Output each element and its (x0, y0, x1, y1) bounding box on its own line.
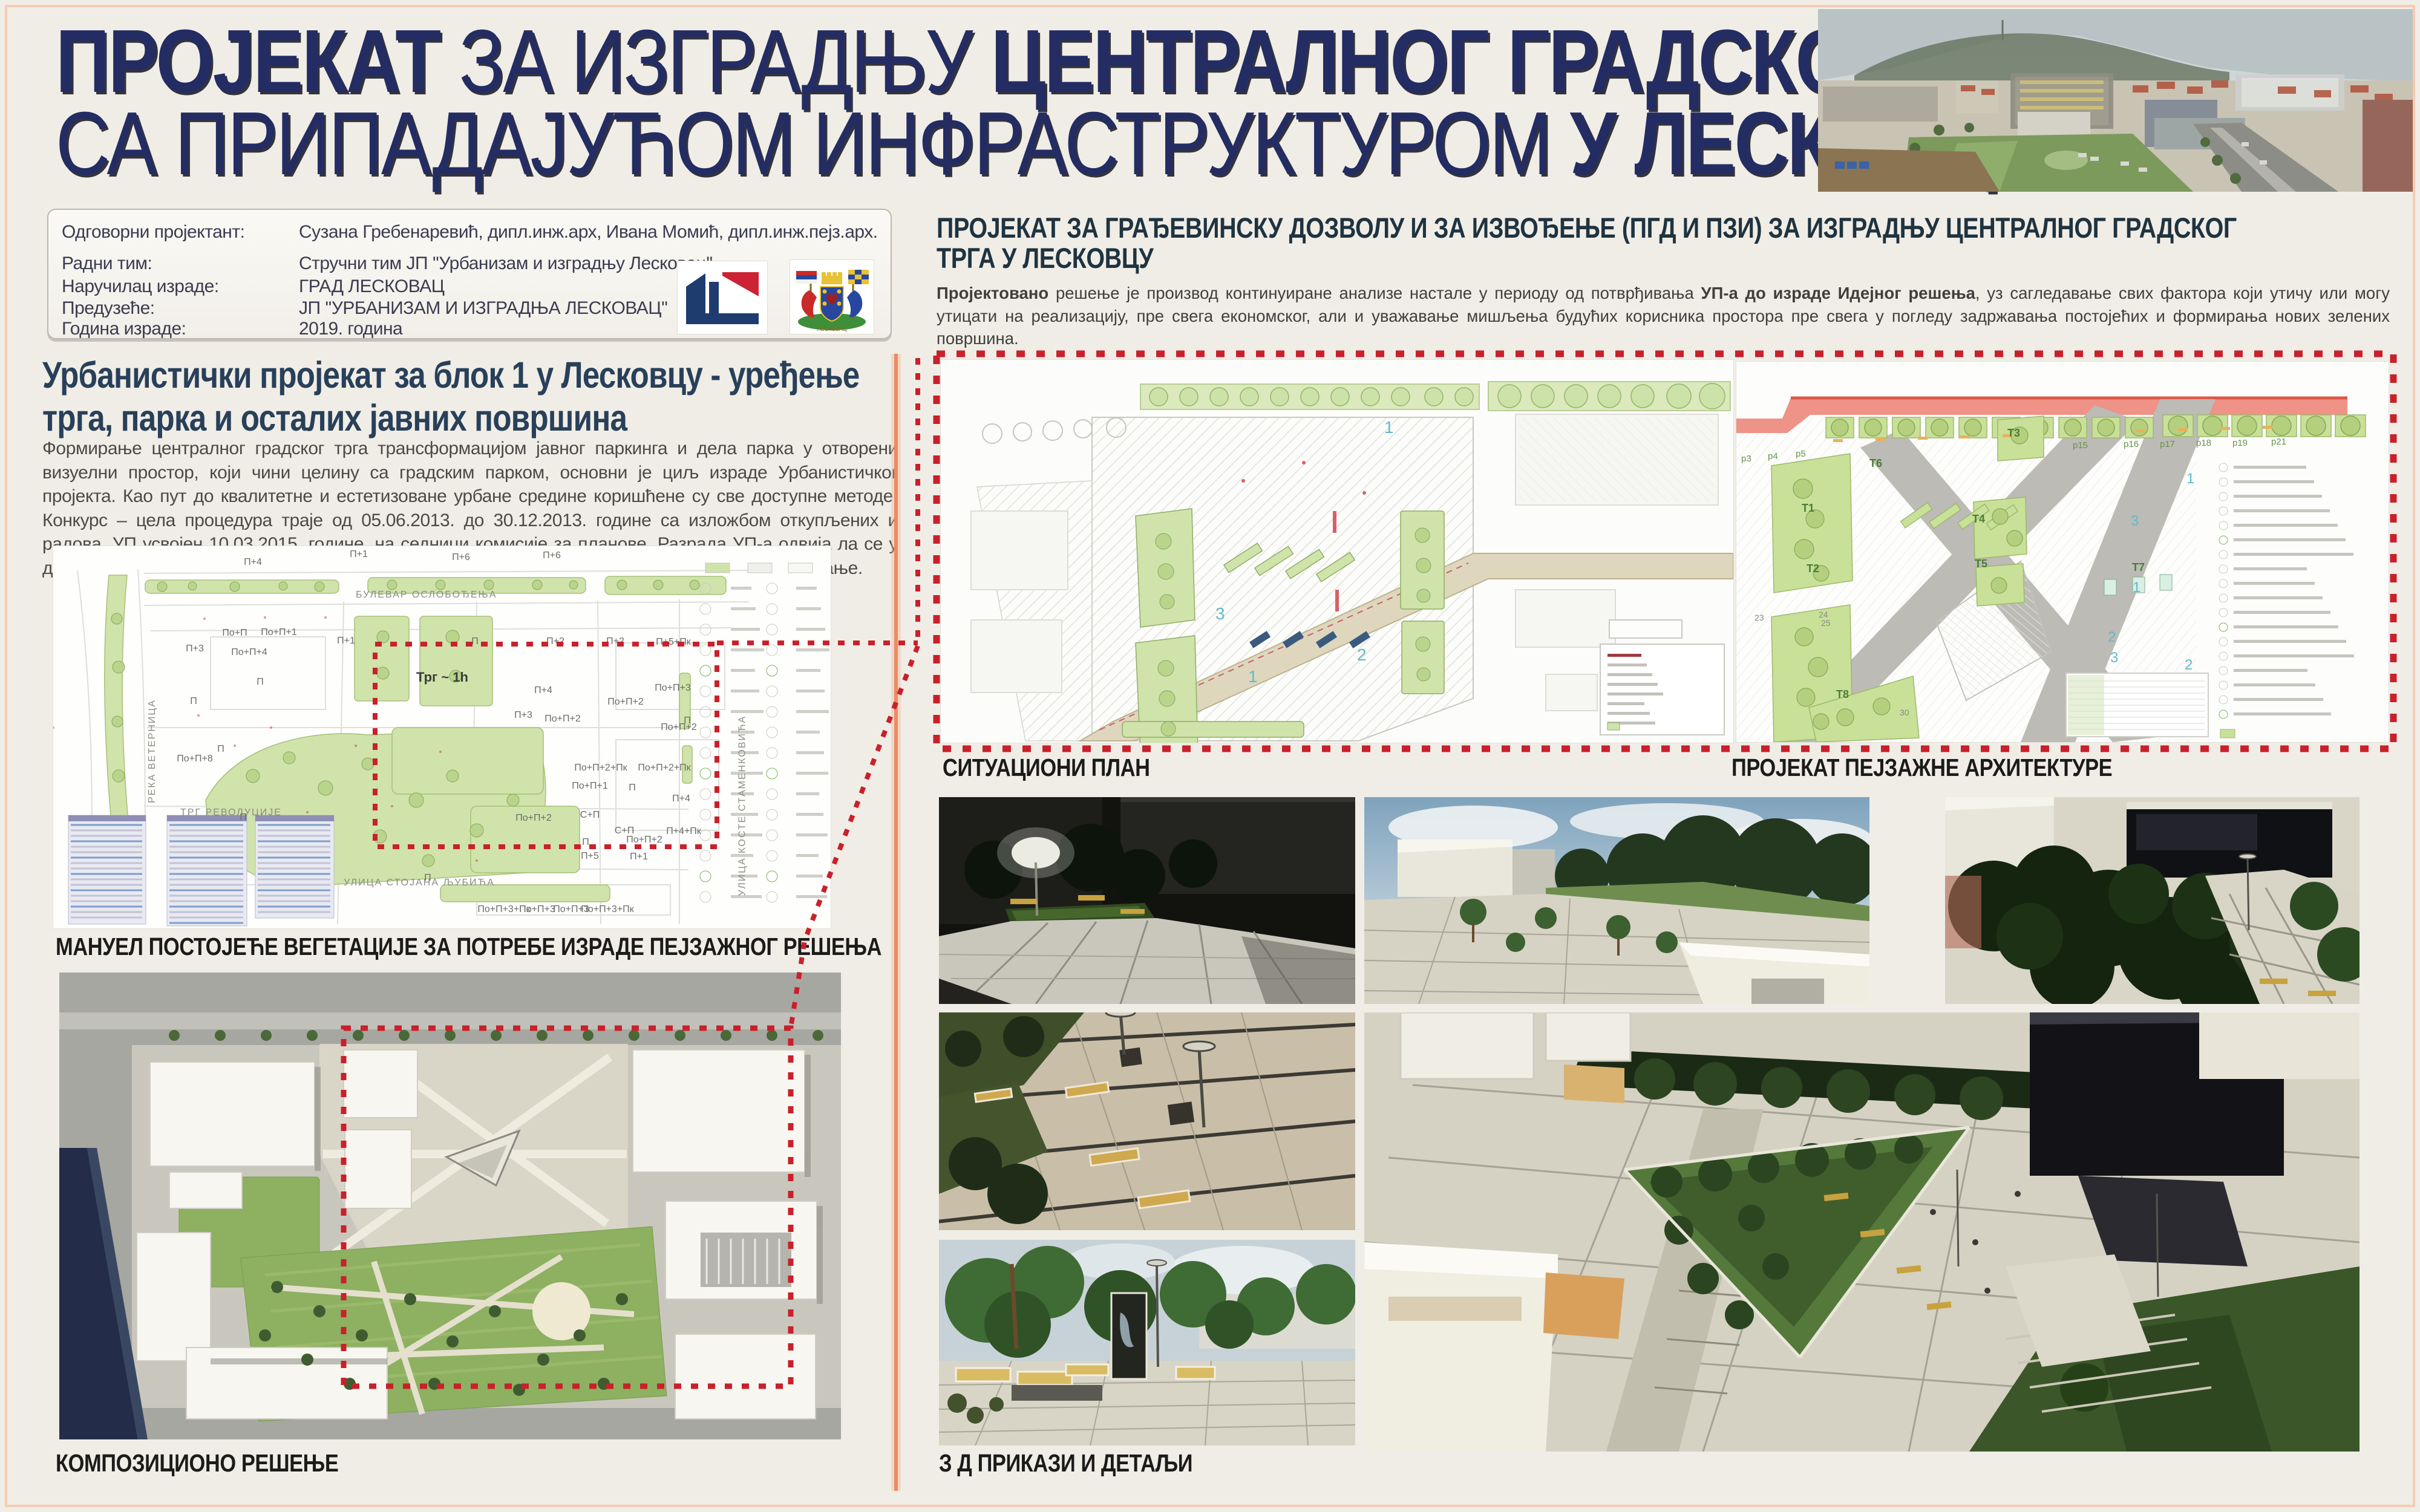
situational-plan-caption: СИТУАЦИОНИ ПЛАН (943, 754, 1150, 782)
render-park-benches (939, 1240, 1355, 1445)
building-storey-label: П (424, 873, 431, 884)
building-storey-label: П (629, 783, 636, 793)
text-run: СА ПРИПАДАЈУЋОМ ИНФРАСТРУКТУРОМ (56, 94, 1570, 194)
building-storey-label: П (582, 837, 589, 848)
text-run: УП-а до израде Идејног решења (1701, 284, 1975, 302)
parcel-label: p3 (1741, 454, 1751, 464)
render-tree-alley-view-graphic (1945, 797, 2359, 1004)
building-storey-label: П+3 (514, 710, 532, 721)
text-run: решење је производ континуиране анализе … (1048, 284, 1701, 302)
parcel-label: p4 (1768, 451, 1778, 461)
situational-plan: 1321 (941, 360, 1733, 743)
building-storey-label: По+П (222, 628, 247, 639)
street-label: ТРГ РЕВОЛУЦИЈЕ (180, 807, 282, 818)
city-aerial-photo-graphic (1818, 9, 2413, 192)
planting-area-label: T5 (1975, 558, 1987, 570)
right-section-heading: ПРОЈЕКАТ ЗА ГРАЂЕВИНСКУ ДОЗВОЛУ И ЗА ИЗВ… (937, 213, 2237, 273)
jp-urbanizam-logo (678, 261, 767, 334)
building-storey-label: П+1 (337, 636, 355, 647)
building-storey-label: По+П+1 (572, 781, 607, 792)
building-storey-label: П+2 (546, 636, 564, 647)
building-storey-label: П+4 (244, 557, 262, 568)
building-storey-label: П+6 (452, 552, 470, 563)
render-night-square-graphic (939, 797, 1355, 1004)
parcel-label: p5 (1796, 449, 1806, 459)
landscape-architecture-plan: T1T2T3T4T5T6T7T8p3p4p5p15p16p17p18p19p21… (1736, 362, 2389, 742)
parcel-label: p15 (2073, 440, 2088, 451)
building-storey-label: П+5 (581, 851, 599, 862)
parcel-label: p21 (2271, 437, 2286, 447)
composition-plan (59, 973, 841, 1439)
zone-number: 1 (2133, 579, 2140, 596)
building-storey-label: С+П (580, 810, 600, 821)
leskovac-coat-of-arms: ЛЕСКОВАЦ (790, 260, 874, 334)
text-run: Пројектовано (937, 284, 1048, 302)
parcel-label: p17 (2160, 439, 2175, 449)
left-section-heading: Урбанистички пројекат за блок 1 у Лесков… (42, 354, 859, 440)
city-aerial-photo (1818, 9, 2413, 192)
situational-plan-graphic (941, 360, 1733, 743)
building-storey-label: П (471, 636, 479, 647)
right-heading-line2: ТРГА У ЛЕСКОВЦУ (937, 243, 2237, 273)
tree-number-label: 23 (1754, 613, 1764, 622)
building-storey-label: П+6 (543, 550, 561, 561)
info-row-label: Одговорни пројектант: (62, 222, 286, 243)
render-night-square (939, 797, 1355, 1004)
planting-area-label: T6 (1869, 457, 1882, 470)
building-storey-label: П+3 (186, 644, 204, 654)
info-row-label: Година израде: (62, 319, 286, 339)
zone-number: 1 (1248, 667, 1258, 686)
building-storey-label: По+П+2 (626, 835, 662, 846)
right-heading-line1: ПРОЈЕКАТ ЗА ГРАЂЕВИНСКУ ДОЗВОЛУ И ЗА ИЗВ… (937, 213, 2237, 243)
leskovac-coat-of-arms-icon: ЛЕСКОВАЦ (790, 260, 874, 334)
zone-number: 3 (2110, 650, 2118, 666)
building-storey-label: П+1 (630, 852, 648, 862)
zone-number: 2 (1357, 645, 1367, 665)
vegetation-map-graphic (53, 546, 831, 928)
building-storey-label: П+4+Пк (666, 826, 701, 837)
render-paving-detail (939, 1012, 1355, 1230)
street-label: УЛИЦА СТОЈАНА ЉУБИЋА (344, 878, 495, 888)
render-tree-alley-view (1945, 797, 2359, 1004)
zone-number: 2 (2108, 629, 2116, 646)
page-title: ПРОЈЕКАТ ЗА ИЗГРАДЊУ ЦЕНТРАЛНОГ ГРАДСКОГ… (56, 21, 2095, 185)
building-storey-label: П (217, 744, 224, 755)
zone-number: 2 (2185, 657, 2193, 674)
building-storey-label: По+П+2+Пк (574, 763, 627, 774)
page-title-line2: СА ПРИПАДАЈУЋОМ ИНФРАСТРУКТУРОМ У ЛЕСКОВ… (56, 103, 2095, 185)
render-park-benches-graphic (939, 1240, 1355, 1445)
building-storey-label: П+4 (672, 793, 690, 804)
building-storey-label: По+П+3+Пк (581, 904, 633, 915)
info-row-value: Сузана Гребенаревић, дипл.инж.арх, Ивана… (299, 222, 880, 243)
zone-number: 3 (2131, 513, 2139, 530)
building-storey-label: По+П+2 (661, 722, 696, 733)
coat-of-arms-city-name: ЛЕСКОВАЦ (817, 326, 847, 332)
planting-area-label: T7 (2132, 561, 2145, 574)
left-heading-line1: Урбанистички пројекат за блок 1 у Лесков… (42, 354, 859, 397)
building-storey-label: По+П+2 (515, 813, 551, 824)
zone-number: 3 (1215, 604, 1225, 624)
square-area-label: Трг ~ 1h (416, 670, 468, 685)
page-title-line1: ПРОЈЕКАТ ЗА ИЗГРАДЊУ ЦЕНТРАЛНОГ ГРАДСКОГ… (56, 21, 2095, 103)
building-storey-label: По+П+2 (607, 697, 643, 708)
parcel-label: p16 (2124, 439, 2139, 449)
render-square-day-view-graphic (1364, 797, 1869, 1004)
building-storey-label: П+4 (534, 685, 552, 696)
info-row-label: Наручилац израде: (62, 276, 286, 297)
tree-number-label: 25 (1821, 618, 1831, 628)
planting-area-label: T2 (1807, 562, 1819, 575)
info-row-label: Предузеће: (62, 298, 286, 319)
building-storey-label: П+1 (350, 549, 368, 560)
vegetation-map-caption: МАНУЕЛ ПОСТОЈЕЋЕ ВЕГЕТАЦИЈЕ ЗА ПОТРЕБЕ И… (56, 933, 881, 961)
render-square-aerial-view (1364, 1012, 2359, 1452)
parcel-label: p19 (2232, 438, 2248, 448)
building-storey-label: По+П+3 (655, 683, 690, 694)
zone-number: 1 (2186, 471, 2194, 487)
landscape-plan-caption: ПРОЈЕКАТ ПЕЈЗАЖНЕ АРХИТЕКТУРЕ (1732, 754, 2112, 782)
street-label: БУЛЕВАР ОСЛОБОЂЕЊА (356, 590, 497, 601)
building-storey-label: По+П+2+Пк (638, 763, 690, 774)
building-storey-label: По+П+3 (519, 904, 555, 915)
composition-plan-caption: КОМПОЗИЦИОНО РЕШЕЊЕ (56, 1449, 338, 1478)
zone-number: 1 (1384, 418, 1394, 437)
building-storey-label: П (257, 677, 264, 688)
jp-urbanizam-logo-icon (678, 261, 767, 334)
composition-plan-graphic (59, 973, 841, 1439)
parcel-label: p18 (2196, 438, 2211, 448)
render-square-aerial-view-graphic (1364, 1012, 2359, 1452)
tree-number-label: 30 (1900, 708, 1909, 717)
building-storey-label: П (240, 812, 247, 823)
building-storey-label: По+П+2 (544, 714, 580, 725)
building-storey-label: По+П+1 (261, 627, 296, 638)
left-heading-line2: трга, парка и осталих јавних површина (42, 397, 859, 440)
street-label: РЕКА ВЕТЕРНИЦА (147, 699, 158, 803)
info-row-label: Радни тим: (62, 253, 286, 274)
street-label: УЛИЦА КОСТЕ СТАМЕНКОВИЋА (737, 715, 748, 896)
building-storey-label: П+2 (606, 636, 624, 647)
planting-area-label: T8 (1836, 688, 1849, 701)
poster: ПРОЈЕКАТ ЗА ИЗГРАДЊУ ЦЕНТРАЛНОГ ГРАДСКОГ… (0, 0, 2420, 1512)
planting-area-label: T3 (2007, 427, 2020, 440)
planting-area-label: T4 (1972, 513, 1985, 526)
building-storey-label: П (190, 696, 197, 707)
vegetation-map: БУЛЕВАР ОСЛОБОЂЕЊАРЕКА ВЕТЕРНИЦАУЛИЦА КО… (53, 546, 831, 928)
planting-area-label: T1 (1802, 502, 1814, 515)
renders-caption: З Д ПРИКАЗИ И ДЕТАЉИ (939, 1449, 1192, 1478)
render-paving-detail-graphic (939, 1012, 1355, 1230)
building-storey-label: По+П+4 (231, 647, 267, 658)
right-section-paragraph: Пројектовано решење је производ континуи… (937, 282, 2390, 350)
render-square-day-view (1364, 797, 1869, 1004)
building-storey-label: П+5+Пк (656, 637, 691, 648)
building-storey-label: По+П+8 (177, 754, 212, 764)
landscape-plan-graphic (1736, 362, 2389, 742)
